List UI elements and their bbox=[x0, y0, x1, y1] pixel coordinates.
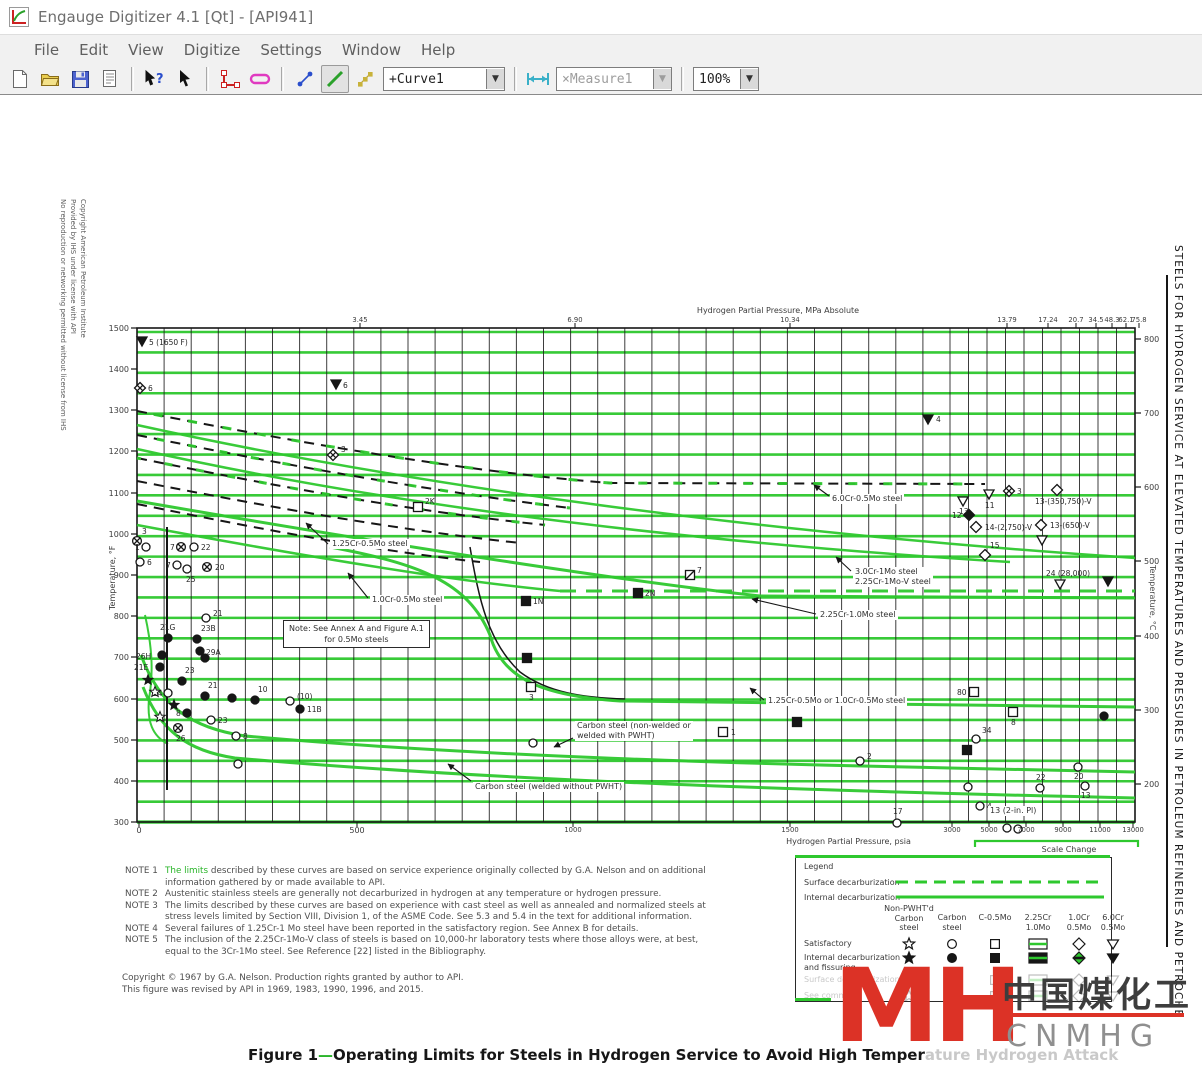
svg-text:17: 17 bbox=[893, 807, 903, 816]
bottom-axis-title: Hydrogen Partial Pressure, psia bbox=[776, 837, 921, 846]
data-point: 80 bbox=[957, 688, 979, 698]
right-axis-title: Temperature, °C bbox=[1148, 565, 1157, 630]
menu-item-file[interactable]: File bbox=[24, 41, 69, 59]
svg-text:8: 8 bbox=[1011, 718, 1016, 727]
menu-bar: FileEditViewDigitizeSettingsWindowHelp bbox=[0, 34, 1202, 64]
svg-text:21G: 21G bbox=[160, 623, 176, 632]
watermark-underline bbox=[1004, 1013, 1184, 1017]
svg-text:14-(2,750)-V: 14-(2,750)-V bbox=[985, 523, 1033, 532]
caption-figure-number: Figure 1 bbox=[248, 1046, 318, 1064]
note-text: The limits described by these curves are… bbox=[165, 901, 725, 924]
measure-select-value: ×Measure1 bbox=[557, 72, 653, 87]
curve-label: 1.0Cr-0.5Mo steel bbox=[370, 595, 444, 605]
right-axis-tick-label: 200 bbox=[1144, 780, 1159, 789]
data-point: 5 (1650 F) bbox=[137, 337, 188, 347]
toolbar-separator bbox=[514, 67, 517, 91]
svg-text:?: ? bbox=[156, 72, 164, 87]
svg-text:24 (28,000): 24 (28,000) bbox=[1046, 569, 1090, 578]
left-axis-tick-label: 500 bbox=[103, 736, 129, 745]
bottom-axis-tick-label: 13000 bbox=[1116, 826, 1150, 834]
svg-text:7: 7 bbox=[170, 543, 175, 552]
top-axis-tick-label: 13.79 bbox=[991, 316, 1023, 324]
svg-text:7: 7 bbox=[166, 561, 171, 570]
point-match-tool-button[interactable] bbox=[351, 65, 379, 93]
menu-item-view[interactable]: View bbox=[118, 41, 174, 59]
data-point: 1 bbox=[135, 543, 150, 552]
page-edge-line bbox=[1166, 275, 1168, 947]
svg-text:10: 10 bbox=[258, 685, 268, 694]
top-axis-tick-label: 3.45 bbox=[344, 316, 376, 324]
bottom-axis-tick-label: 11000 bbox=[1083, 826, 1117, 834]
data-point: 1 bbox=[719, 728, 737, 738]
save-button[interactable] bbox=[66, 65, 94, 93]
data-point: 7 bbox=[166, 561, 181, 570]
svg-text:8: 8 bbox=[243, 732, 248, 741]
curve-label: 13 (2-in. Pl) bbox=[988, 806, 1038, 816]
note-label: NOTE 1 bbox=[125, 866, 165, 889]
svg-text:34: 34 bbox=[982, 726, 992, 735]
data-point: 11 bbox=[984, 490, 995, 510]
ihs-copyright-sidebar: Copyright American Petroleum Institute P… bbox=[58, 199, 88, 439]
left-axis-tick-label: 400 bbox=[103, 777, 129, 786]
svg-text:11: 11 bbox=[985, 501, 995, 510]
svg-text:3: 3 bbox=[1017, 487, 1022, 496]
bottom-axis-tick-label: 7000 bbox=[1009, 826, 1043, 834]
svg-text:13-(350,750)-V: 13-(350,750)-V bbox=[1035, 497, 1092, 506]
data-point bbox=[1037, 536, 1047, 545]
document-canvas[interactable]: 5 (1650 F)66342K1311313-(350,750)-V1214-… bbox=[0, 95, 1202, 984]
chevron-down-icon[interactable]: ▼ bbox=[486, 69, 504, 89]
window-title: Engauge Digitizer 4.1 [Qt] - [API941] bbox=[38, 8, 313, 26]
svg-text:22: 22 bbox=[1036, 773, 1046, 782]
data-point bbox=[201, 654, 209, 662]
data-point: 8 bbox=[1009, 708, 1018, 728]
note-label: NOTE 5 bbox=[125, 935, 165, 958]
menu-item-settings[interactable]: Settings bbox=[250, 41, 332, 59]
left-axis-tick-label: 300 bbox=[103, 818, 129, 827]
svg-text:8: 8 bbox=[176, 709, 181, 718]
data-point: 1N bbox=[522, 597, 544, 607]
app-icon bbox=[9, 7, 29, 27]
svg-text:1N: 1N bbox=[533, 597, 543, 606]
svg-text:1: 1 bbox=[731, 728, 736, 737]
chevron-down-icon[interactable]: ▼ bbox=[740, 69, 758, 89]
data-point: 22 bbox=[190, 543, 211, 552]
axes-point-tool-button[interactable] bbox=[216, 65, 244, 93]
menu-item-edit[interactable]: Edit bbox=[69, 41, 118, 59]
note-row: NOTE 4Several failures of 1.25Cr-1 Mo st… bbox=[125, 924, 735, 936]
data-point: 10 bbox=[251, 685, 268, 704]
svg-text:3: 3 bbox=[529, 693, 534, 702]
data-point: 11B bbox=[296, 705, 322, 714]
caption-dash: — bbox=[318, 1046, 333, 1064]
context-help-button[interactable]: ? bbox=[141, 65, 169, 93]
svg-text:21: 21 bbox=[213, 609, 223, 618]
legend-line-sample bbox=[896, 893, 1104, 901]
note-row: NOTE 2Austenitic stainless steels are ge… bbox=[125, 889, 735, 901]
new-document-icon bbox=[11, 69, 29, 89]
left-axis-tick-label: 900 bbox=[103, 571, 129, 580]
left-axis-tick-label: 700 bbox=[103, 653, 129, 662]
tool-bar: ? bbox=[0, 64, 1202, 95]
right-axis-tick-label: 300 bbox=[1144, 706, 1159, 715]
help-pointer-icon: ? bbox=[144, 69, 166, 89]
copyright-line: No reproduction or networking permitted … bbox=[58, 199, 68, 439]
axes-tool-icon bbox=[220, 69, 240, 89]
legend-symbol-tri-f bbox=[1100, 950, 1126, 966]
data-point: 20 bbox=[203, 563, 225, 572]
note-text: Austenitic stainless steels are generall… bbox=[165, 889, 725, 901]
data-point bbox=[964, 783, 972, 791]
curve-select-combo[interactable]: +Curve1 ▼ bbox=[383, 67, 505, 91]
svg-text:22: 22 bbox=[201, 543, 211, 552]
svg-text:3: 3 bbox=[142, 527, 147, 536]
legend-bottom-highlight bbox=[795, 998, 831, 1001]
svg-text:13: 13 bbox=[1081, 791, 1091, 800]
legend-column-header: 6.0Cr0.5Mo bbox=[1087, 913, 1139, 932]
toolbar-separator bbox=[206, 67, 209, 91]
legend-symbol-dia-g bbox=[1066, 950, 1092, 966]
data-point: 8 bbox=[176, 709, 191, 718]
note-row: NOTE 1The limits described by these curv… bbox=[125, 866, 735, 889]
bottom-axis-tick-label: 5000 bbox=[972, 826, 1006, 834]
note-text: The limits described by these curves are… bbox=[165, 866, 725, 889]
measure-tool-button[interactable] bbox=[524, 65, 552, 93]
data-point: 24 (28,000) bbox=[1046, 569, 1090, 589]
data-point: 20 bbox=[1074, 763, 1084, 781]
data-point: 13-(650)-V bbox=[1036, 520, 1091, 531]
curve-label: 2.25Cr-1.0Mo steel bbox=[818, 610, 898, 620]
legend-line-label: Surface decarburization bbox=[804, 878, 900, 888]
svg-text:(10): (10) bbox=[297, 692, 312, 701]
note-row: NOTE 3The limits described by these curv… bbox=[125, 901, 735, 924]
document-spine-title: STEELS FOR HYDROGEN SERVICE AT ELEVATED … bbox=[1172, 245, 1184, 975]
data-point: 14-(2,750)-V bbox=[971, 522, 1033, 533]
zoom-select-combo[interactable]: 100% ▼ bbox=[693, 67, 759, 91]
data-point: 21 bbox=[201, 681, 218, 700]
top-axis-tick-label: 10.34 bbox=[774, 316, 806, 324]
svg-text:6: 6 bbox=[343, 381, 348, 390]
new-document-button[interactable] bbox=[6, 65, 34, 93]
svg-text:2K: 2K bbox=[425, 497, 436, 506]
left-axis-tick-label: 800 bbox=[103, 612, 129, 621]
cursor-arrow-icon bbox=[177, 69, 193, 89]
left-axis-tick-label: 1100 bbox=[103, 489, 129, 498]
legend-line-sample bbox=[896, 878, 1104, 886]
left-axis-tick-label: 1500 bbox=[103, 324, 129, 333]
zoom-select-value: 100% bbox=[694, 72, 740, 87]
data-point bbox=[523, 654, 532, 663]
legend-title: Legend bbox=[804, 862, 833, 872]
menu-item-window[interactable]: Window bbox=[332, 41, 411, 59]
segment-fill-icon bbox=[249, 72, 271, 86]
right-axis-tick-label: 500 bbox=[1144, 557, 1159, 566]
chevron-down-icon[interactable]: ▼ bbox=[653, 69, 671, 89]
copyright-line: Provided by IHS under license with API bbox=[68, 199, 78, 439]
measure-arrow-icon bbox=[526, 71, 550, 87]
data-point bbox=[963, 746, 972, 755]
data-point: 26H bbox=[136, 651, 166, 661]
svg-text:80: 80 bbox=[957, 688, 967, 697]
svg-text:6: 6 bbox=[147, 558, 152, 567]
svg-text:11B: 11B bbox=[307, 705, 322, 714]
bottom-axis-tick-label: 500 bbox=[340, 826, 374, 835]
svg-text:2N: 2N bbox=[645, 589, 655, 598]
svg-text:23B: 23B bbox=[201, 624, 216, 633]
scale-change-label: Scale Change bbox=[1013, 845, 1125, 854]
measure-select-combo[interactable]: ×Measure1 ▼ bbox=[556, 67, 672, 91]
engauge-window: { "window": { "title": "Engauge Digitize… bbox=[0, 0, 1202, 984]
data-point: 25 bbox=[183, 565, 196, 584]
left-axis-tick-label: 600 bbox=[103, 695, 129, 704]
open-folder-icon bbox=[40, 70, 60, 88]
legend-line-label: Internal decarburization bbox=[804, 893, 900, 903]
data-point bbox=[228, 694, 236, 702]
data-point bbox=[234, 760, 242, 768]
right-axis-tick-label: 800 bbox=[1144, 335, 1159, 344]
note-row: NOTE 5The inclusion of the 2.25Cr-1Mo-V … bbox=[125, 935, 735, 958]
figure-copyright: Copyright © 1967 by G.A. Nelson. Product… bbox=[122, 973, 464, 996]
data-point: 23 bbox=[207, 716, 228, 725]
data-point bbox=[1100, 712, 1108, 720]
svg-text:6: 6 bbox=[148, 384, 153, 393]
data-point: 26 bbox=[174, 724, 186, 743]
save-floppy-icon bbox=[71, 70, 90, 89]
note-label: NOTE 3 bbox=[125, 901, 165, 924]
svg-text:4: 4 bbox=[936, 415, 941, 424]
data-point bbox=[1103, 577, 1113, 586]
point-match-icon bbox=[355, 69, 375, 89]
title-bar[interactable]: Engauge Digitizer 4.1 [Qt] - [API941] bbox=[0, 0, 1202, 35]
svg-text:21: 21 bbox=[208, 681, 218, 690]
bottom-axis-tick-label: 1000 bbox=[556, 826, 590, 834]
toolbar-separator bbox=[131, 67, 134, 91]
curve-label: Carbon steel (welded without PWHT) bbox=[473, 782, 624, 792]
copyright-line: Copyright American Petroleum Institute bbox=[78, 199, 88, 439]
data-point: 21 bbox=[202, 609, 223, 622]
export-document-icon bbox=[102, 69, 118, 89]
curve-label: 1.25Cr-0.5Mo or 1.0Cr-0.5Mo steel bbox=[766, 696, 907, 706]
note-text: The inclusion of the 2.25Cr-1Mo-V class … bbox=[165, 935, 725, 958]
curve-segment-icon bbox=[325, 69, 345, 89]
top-axis-title: Hydrogen Partial Pressure, MPa Absolute bbox=[688, 306, 868, 315]
data-point: 2N bbox=[634, 589, 656, 599]
svg-text:1: 1 bbox=[135, 543, 140, 552]
watermark-logo: MH bbox=[833, 957, 1017, 1057]
data-point: 6 bbox=[331, 380, 348, 390]
menu-item-digitize[interactable]: Digitize bbox=[174, 41, 251, 59]
open-file-button[interactable] bbox=[36, 65, 64, 93]
watermark-latin-text: CNMHG bbox=[1006, 1019, 1161, 1054]
svg-text:21E: 21E bbox=[134, 663, 149, 672]
curve-segment-tool-button[interactable] bbox=[321, 65, 349, 93]
svg-text:25: 25 bbox=[186, 575, 196, 584]
svg-text:26: 26 bbox=[176, 734, 186, 743]
svg-text:23: 23 bbox=[218, 716, 228, 725]
curve-label: 6.0Cr-0.5Mo steel bbox=[830, 494, 904, 504]
annex-note-line: for 0.5Mo steels bbox=[289, 634, 424, 645]
copyright-text-line: This figure was revised by API in 1969, … bbox=[122, 985, 464, 997]
svg-text:5 (1650 F): 5 (1650 F) bbox=[149, 338, 188, 347]
left-axis-tick-label: 1300 bbox=[103, 406, 129, 415]
curve-label: 3.0Cr-1Mo steel2.25Cr-1Mo-V steel bbox=[853, 567, 933, 587]
note-text: Several failures of 1.25Cr-1 Mo steel ha… bbox=[165, 924, 725, 936]
legend-symbol-rect-f bbox=[1025, 950, 1051, 966]
curve-label: 1.25Cr-0.5Mo steel bbox=[330, 539, 410, 549]
data-point bbox=[793, 718, 802, 727]
toolbar-separator bbox=[281, 67, 284, 91]
top-axis-tick-label: 75.8 bbox=[1123, 316, 1155, 324]
svg-text:23: 23 bbox=[185, 666, 195, 675]
left-axis-tick-label: 1400 bbox=[103, 365, 129, 374]
export-button[interactable] bbox=[96, 65, 124, 93]
svg-text:26H: 26H bbox=[136, 652, 151, 661]
left-axis-tick-label: 1200 bbox=[103, 447, 129, 456]
figure-notes: NOTE 1The limits described by these curv… bbox=[125, 866, 735, 958]
right-axis-tick-label: 400 bbox=[1144, 632, 1159, 641]
data-point: 17 bbox=[893, 807, 903, 827]
data-point: 23 bbox=[178, 666, 195, 685]
right-axis-tick-label: 600 bbox=[1144, 483, 1159, 492]
svg-text:15: 15 bbox=[990, 541, 1000, 550]
segment-fill-tool-button[interactable] bbox=[246, 65, 274, 93]
data-point bbox=[529, 739, 537, 747]
legend-top-highlight bbox=[795, 855, 1110, 858]
right-axis-tick-label: 700 bbox=[1144, 409, 1159, 418]
data-point: 13 bbox=[1081, 782, 1091, 800]
svg-text:2: 2 bbox=[867, 752, 872, 761]
toolbar-separator bbox=[681, 67, 684, 91]
data-point: 7 bbox=[170, 543, 185, 552]
svg-text:13-(650)-V: 13-(650)-V bbox=[1050, 521, 1091, 530]
curve-point-tool-button[interactable] bbox=[291, 65, 319, 93]
curve-label: Carbon steel (non-welded orwelded with P… bbox=[575, 721, 693, 741]
svg-text:3: 3 bbox=[341, 445, 346, 454]
data-point: 2 bbox=[856, 752, 872, 765]
left-axis-tick-label: 1000 bbox=[103, 530, 129, 539]
bottom-axis-tick-label: 0 bbox=[122, 826, 156, 835]
bottom-axis-tick-label: 1500 bbox=[773, 826, 807, 834]
watermark-cjk-text: 中国煤化工 bbox=[1002, 967, 1192, 1018]
note-label: NOTE 4 bbox=[125, 924, 165, 936]
note-label: NOTE 2 bbox=[125, 889, 165, 901]
curve-point-icon bbox=[295, 69, 315, 89]
bottom-axis-tick-label: 3000 bbox=[935, 826, 969, 834]
annex-note-line: Note: See Annex A and Figure A.1 bbox=[289, 623, 424, 634]
select-tool-button[interactable] bbox=[171, 65, 199, 93]
svg-text:7: 7 bbox=[697, 566, 702, 575]
svg-text:20: 20 bbox=[215, 563, 225, 572]
bottom-axis-tick-label: 9000 bbox=[1046, 826, 1080, 834]
top-axis-tick-label: 6.90 bbox=[559, 316, 591, 324]
svg-text:20: 20 bbox=[1074, 772, 1084, 781]
svg-text:12: 12 bbox=[952, 511, 962, 520]
annex-note-box: Note: See Annex A and Figure A.1 for 0.5… bbox=[283, 620, 430, 648]
curve-select-value: +Curve1 bbox=[384, 72, 486, 87]
data-point: 4 bbox=[923, 415, 941, 424]
menu-item-help[interactable]: Help bbox=[411, 41, 465, 59]
copyright-text-line: Copyright © 1967 by G.A. Nelson. Product… bbox=[122, 973, 464, 985]
data-point: 6 bbox=[136, 558, 152, 567]
data-point: 23B bbox=[193, 624, 216, 643]
